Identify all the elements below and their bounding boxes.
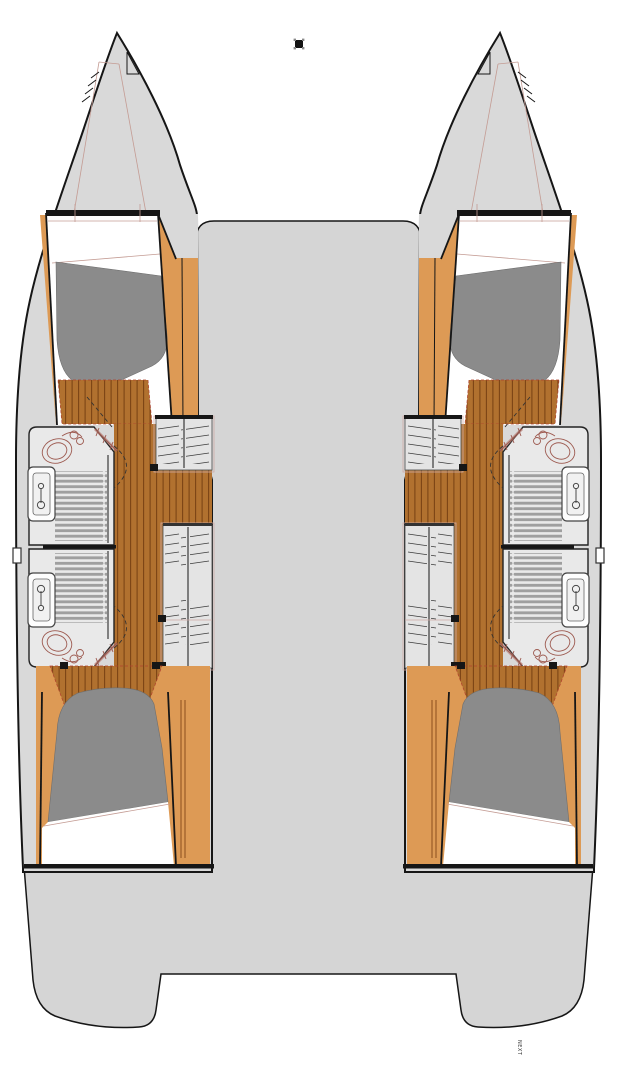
hull-starboard bbox=[403, 33, 604, 872]
plan-footnote: NEXT bbox=[516, 1040, 521, 1055]
hull-port bbox=[13, 33, 214, 872]
boat-plan bbox=[0, 0, 617, 1080]
boat-plan-canvas: NEXT bbox=[0, 0, 617, 1080]
plan-marker bbox=[294, 39, 305, 50]
